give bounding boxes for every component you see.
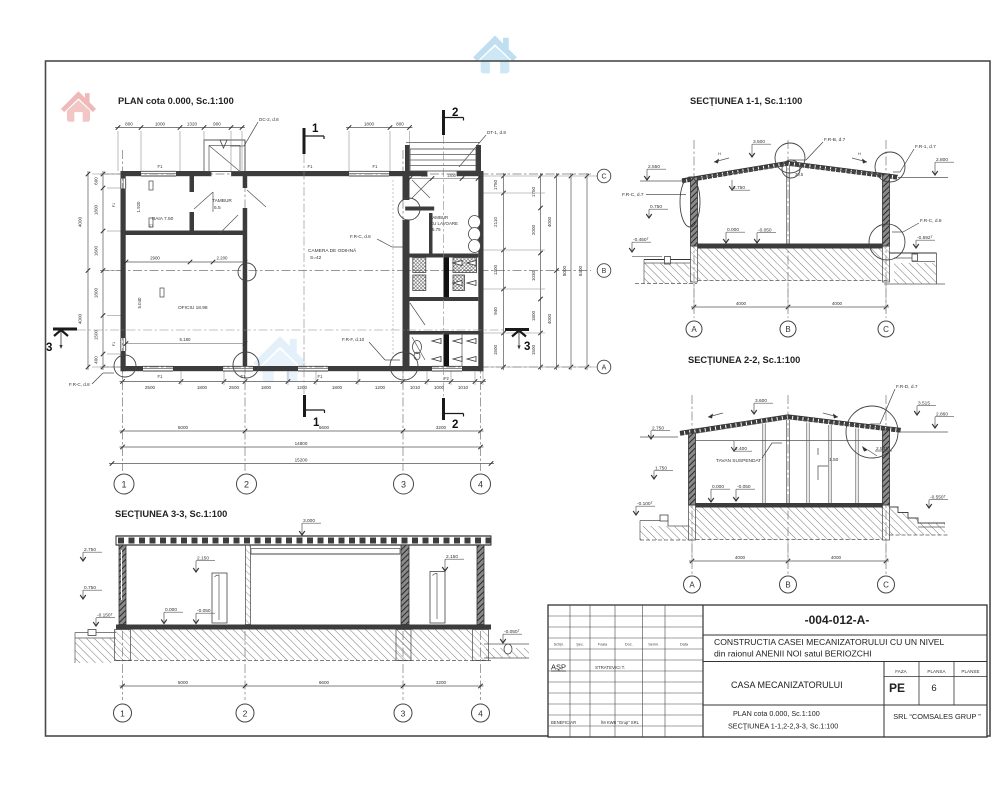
svg-text:BAIA 7.50: BAIA 7.50 — [152, 216, 174, 222]
svg-text:SECŢIUNEA 2-2, Sc.1:100: SECŢIUNEA 2-2, Sc.1:100 — [688, 355, 800, 365]
svg-text:2110: 2110 — [493, 217, 498, 227]
svg-text:14800: 14800 — [295, 441, 308, 446]
svg-text:1600: 1600 — [94, 245, 99, 256]
svg-text:DC-2, d.8: DC-2, d.8 — [259, 117, 279, 122]
svg-text:TAMBUR: TAMBUR — [430, 215, 448, 220]
svg-text:900: 900 — [421, 173, 428, 178]
svg-text:1800: 1800 — [94, 204, 99, 215]
svg-text:F1: F1 — [158, 164, 164, 169]
svg-text:1: 1 — [312, 123, 319, 135]
svg-text:2.200: 2.200 — [217, 256, 229, 261]
svg-text:1500: 1500 — [531, 344, 536, 355]
svg-text:5.75: 5.75 — [432, 227, 441, 232]
svg-text:1200: 1200 — [297, 385, 308, 390]
svg-text:1000: 1000 — [155, 122, 166, 127]
svg-text:1: 1 — [313, 417, 320, 429]
svg-text:940: 940 — [493, 307, 498, 315]
svg-text:4000: 4000 — [735, 555, 746, 560]
svg-text:2: 2 — [244, 480, 249, 490]
svg-text:F.R-1, d.7: F.R-1, d.7 — [915, 144, 936, 150]
svg-text:6600: 6600 — [319, 680, 330, 685]
svg-text:FAZA: FAZA — [895, 669, 907, 674]
svg-text:PLANSA: PLANSA — [927, 669, 946, 674]
svg-text:F1: F1 — [318, 374, 324, 379]
svg-text:Data: Data — [680, 643, 689, 647]
svg-text:B: B — [785, 325, 790, 334]
svg-text:A: A — [691, 325, 697, 334]
svg-text:5.5: 5.5 — [214, 205, 221, 211]
svg-text:-004-012-A-: -004-012-A- — [805, 613, 870, 627]
svg-text:CAMERA DE ODIHNĂ: CAMERA DE ODIHNĂ — [308, 247, 357, 254]
svg-text:TAMBUR: TAMBUR — [212, 198, 232, 204]
svg-text:2: 2 — [243, 708, 248, 718]
svg-text:F1: F1 — [112, 342, 116, 346]
svg-text:S=42: S=42 — [310, 255, 322, 261]
svg-text:1030: 1030 — [531, 270, 536, 281]
svg-text:1500: 1500 — [493, 344, 498, 355]
svg-text:800: 800 — [125, 122, 133, 127]
svg-text:CASA MECANIZATORULUI: CASA MECANIZATORULUI — [731, 680, 843, 690]
svg-text:AŞP: AŞP — [551, 663, 566, 672]
svg-text:1: 1 — [120, 708, 125, 718]
svg-text:1320: 1320 — [187, 122, 198, 127]
svg-text:1800: 1800 — [94, 287, 99, 298]
svg-text:3200: 3200 — [436, 680, 447, 685]
svg-text:1.50: 1.50 — [829, 457, 839, 463]
svg-text:1800: 1800 — [531, 310, 536, 321]
svg-text:2500: 2500 — [229, 385, 240, 390]
svg-text:C: C — [601, 174, 606, 181]
svg-text:900: 900 — [213, 122, 221, 127]
svg-text:3: 3 — [524, 341, 530, 353]
svg-text:3: 3 — [46, 342, 52, 354]
svg-text:CONSTRUCTIA CASEI MECANIZATOR: CONSTRUCTIA CASEI MECANIZATORULUI CU UN … — [714, 637, 945, 647]
svg-text:BENEFICIAR: BENEFICIAR — [551, 720, 576, 725]
svg-text:4000: 4000 — [831, 555, 842, 560]
svg-text:1.920: 1.920 — [136, 201, 141, 213]
svg-text:B: B — [785, 581, 790, 590]
svg-text:5.040: 5.040 — [137, 297, 142, 309]
svg-text:F.R-C, d.7: F.R-C, d.7 — [622, 192, 644, 198]
svg-text:4000: 4000 — [78, 216, 83, 227]
svg-text:1750: 1750 — [493, 179, 498, 190]
svg-text:1500: 1500 — [94, 329, 99, 340]
svg-text:F1: F1 — [308, 164, 314, 169]
svg-text:1800: 1800 — [364, 122, 375, 127]
svg-text:SRL “COMSALES GRUP ”: SRL “COMSALES GRUP ” — [893, 712, 981, 721]
svg-text:400: 400 — [94, 356, 99, 364]
svg-text:F1: F1 — [112, 203, 116, 207]
svg-text:1750: 1750 — [531, 186, 536, 197]
svg-text:A: A — [602, 365, 607, 372]
svg-text:DT-1, d.8: DT-1, d.8 — [487, 130, 506, 135]
svg-text:SECŢIUNEA 1-1,2-2,3-3, Sc.1:10: SECŢIUNEA 1-1,2-2,3-3, Sc.1:100 — [728, 722, 838, 731]
svg-text:F.R-C, d.8: F.R-C, d.8 — [69, 382, 90, 387]
svg-text:OFICIU 18.98: OFICIU 18.98 — [178, 305, 208, 311]
svg-text:F1: F1 — [373, 164, 379, 169]
svg-text:2900: 2900 — [150, 256, 160, 261]
svg-text:4000: 4000 — [736, 301, 747, 306]
svg-text:C: C — [883, 325, 889, 334]
svg-text:H: H — [718, 151, 721, 156]
svg-text:4000: 4000 — [832, 301, 843, 306]
svg-text:PE: PE — [889, 681, 905, 695]
svg-text:F.R-C, d.8: F.R-C, d.8 — [920, 218, 942, 224]
svg-text:5000: 5000 — [178, 680, 189, 685]
svg-text:TAVAN SUSPENDAT: TAVAN SUSPENDAT — [716, 458, 761, 464]
svg-text:1800: 1800 — [332, 385, 343, 390]
svg-text:PLAN cota 0.000, Sc.1:100: PLAN cota 0.000, Sc.1:100 — [733, 709, 820, 718]
svg-text:3200: 3200 — [436, 425, 447, 430]
svg-text:8000: 8000 — [562, 265, 567, 276]
svg-text:F.R-C, d.8: F.R-C, d.8 — [350, 234, 371, 239]
svg-text:4: 4 — [478, 708, 483, 718]
svg-text:Foaia: Foaia — [598, 643, 608, 647]
svg-text:H: H — [858, 151, 861, 156]
svg-text:4000: 4000 — [547, 313, 552, 324]
svg-text:F1: F1 — [158, 374, 164, 379]
svg-text:1300: 1300 — [447, 173, 457, 178]
svg-text:8400: 8400 — [578, 265, 583, 276]
svg-text:1800: 1800 — [197, 385, 208, 390]
svg-text:1010: 1010 — [410, 385, 421, 390]
svg-text:F2: F2 — [444, 376, 450, 381]
svg-text:C: C — [883, 581, 889, 590]
svg-text:2500: 2500 — [145, 385, 156, 390]
svg-text:A: A — [689, 581, 695, 590]
svg-text:Sch|n.: Sch|n. — [554, 643, 565, 647]
svg-text:din raionul ANENII NOI satul: din raionul ANENII NOI satul BERIOZCHI — [714, 649, 872, 659]
svg-text:4000: 4000 — [547, 216, 552, 227]
svg-text:6: 6 — [931, 683, 936, 694]
svg-text:SECŢIUNEA 1-1, Sc.1:100: SECŢIUNEA 1-1, Sc.1:100 — [690, 96, 802, 106]
svg-text:PLAN cota 0.000, Sc.1:100: PLAN cota 0.000, Sc.1:100 — [118, 96, 234, 106]
svg-text:Semn.: Semn. — [648, 643, 659, 647]
svg-text:4: 4 — [478, 480, 483, 490]
svg-text:5.180: 5.180 — [180, 337, 192, 342]
svg-text:ÎM KWB “Grup” SRL: ÎM KWB “Grup” SRL — [600, 720, 640, 725]
svg-text:Şec.: Şec. — [576, 643, 584, 647]
svg-text:600: 600 — [94, 177, 99, 185]
svg-text:1: 1 — [121, 480, 126, 490]
svg-text:F.R-F, d.10: F.R-F, d.10 — [342, 337, 365, 342]
svg-text:2: 2 — [452, 419, 458, 431]
svg-text:UM: UM — [436, 252, 442, 257]
svg-text:SECŢIUNEA 3-3, Sc.1:100: SECŢIUNEA 3-3, Sc.1:100 — [115, 509, 227, 519]
svg-text:1300: 1300 — [493, 264, 498, 275]
svg-text:1010: 1010 — [458, 385, 469, 390]
svg-text:1800: 1800 — [261, 385, 272, 390]
svg-text:2: 2 — [452, 107, 458, 119]
svg-text:Doc.: Doc. — [625, 643, 633, 647]
svg-text:3: 3 — [401, 480, 406, 490]
svg-text:1200: 1200 — [375, 385, 386, 390]
svg-text:800: 800 — [396, 122, 404, 127]
svg-text:CU LAVOARE: CU LAVOARE — [430, 221, 458, 226]
svg-text:4000: 4000 — [78, 313, 83, 324]
svg-text:STRATEVICI T.: STRATEVICI T. — [595, 665, 625, 670]
svg-text:15200: 15200 — [295, 458, 308, 463]
svg-text:3: 3 — [401, 708, 406, 718]
svg-text:6600: 6600 — [319, 425, 330, 430]
svg-text:F.R-B, d.7: F.R-B, d.7 — [824, 137, 846, 143]
svg-text:B: B — [602, 268, 607, 275]
svg-text:2000: 2000 — [531, 224, 536, 235]
svg-text:5000: 5000 — [178, 425, 189, 430]
svg-text:1000: 1000 — [434, 385, 445, 390]
svg-text:F.R-D, d.7: F.R-D, d.7 — [896, 384, 918, 390]
svg-text:PLANSE: PLANSE — [961, 669, 979, 674]
